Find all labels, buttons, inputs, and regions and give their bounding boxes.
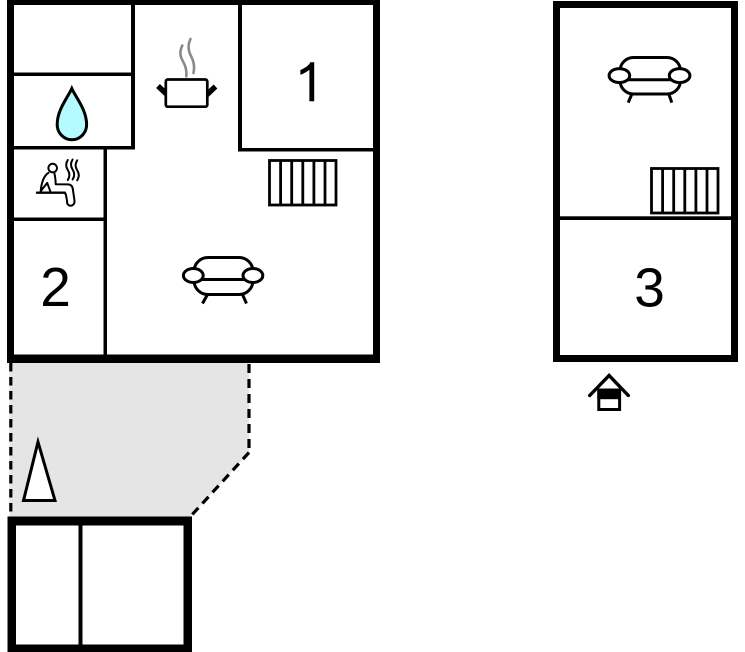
svg-text:3: 3 bbox=[634, 257, 665, 319]
svg-text:2: 2 bbox=[40, 256, 71, 318]
